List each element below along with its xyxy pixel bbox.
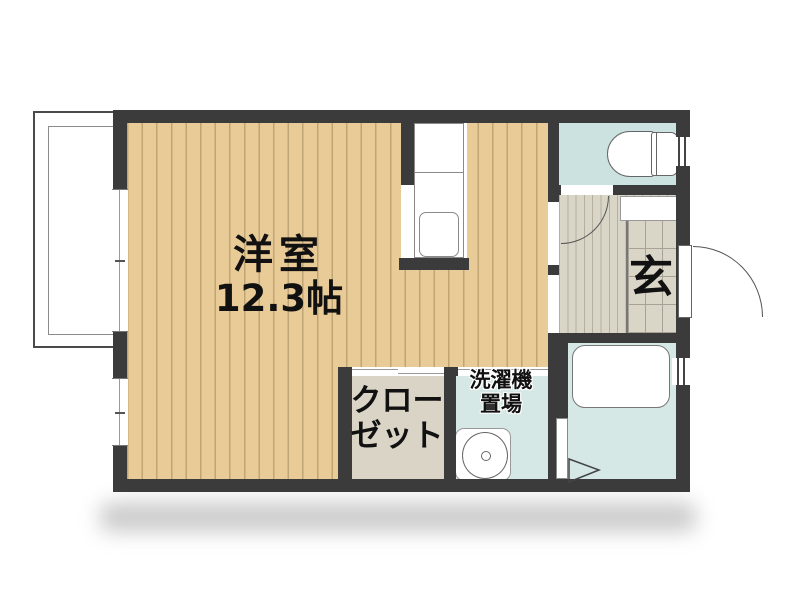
floorplan-canvas: 洋室 12.3帖 クロー ゼット 洗濯機 置場 玄 (0, 0, 800, 600)
window-toilet (673, 137, 691, 166)
tank-line (656, 133, 657, 175)
window-center-tick (115, 412, 125, 414)
bath-top-wall (548, 333, 676, 343)
folding-door-icon (566, 453, 604, 485)
balcony-inner-line (48, 126, 113, 335)
front-door-swing-arc (693, 246, 763, 317)
western-room-label: 洋室 12.3帖 (168, 233, 390, 319)
counter-divider-line (415, 172, 463, 173)
window-bar (684, 137, 686, 166)
front-door-leaf (678, 245, 692, 318)
entrance-label: 玄 (626, 253, 676, 302)
window-bar (678, 137, 680, 166)
window-center-tick (115, 260, 125, 262)
kitchen-stub-wall-bottom (399, 258, 469, 270)
shoe-cabinet (620, 196, 678, 221)
closet-label: クロー ゼット (350, 384, 444, 453)
room-size-text: 12.3帖 (168, 278, 390, 319)
window-balcony (112, 189, 128, 332)
closet-label-line2: ゼット (350, 419, 444, 454)
closet-sliding-door (352, 367, 444, 376)
window-bar (677, 358, 679, 385)
laundry-label: 洗濯機 置場 (454, 369, 548, 416)
drop-shadow (100, 502, 696, 532)
closet-door-line (352, 369, 398, 370)
closet-label-line1: クロー (350, 384, 444, 419)
window-bar (683, 358, 685, 385)
room-hall-door-opening-2 (548, 275, 559, 333)
closet-door-line2 (398, 373, 444, 374)
washer-drain-icon (481, 451, 491, 461)
kitchen-sink (419, 212, 459, 257)
window-left-lower (112, 378, 128, 446)
room-hall-door-opening-1 (548, 202, 559, 265)
laundry-label-line1: 洗濯機 (454, 369, 548, 393)
kitchen-stub-wall-left (401, 115, 414, 185)
toilet-bowl (607, 131, 655, 177)
laundry-label-line2: 置場 (454, 393, 548, 417)
window-bath (672, 358, 691, 385)
room-name-text: 洋室 (168, 233, 390, 278)
toilet-door-opening (561, 185, 613, 195)
bathtub (572, 345, 670, 408)
